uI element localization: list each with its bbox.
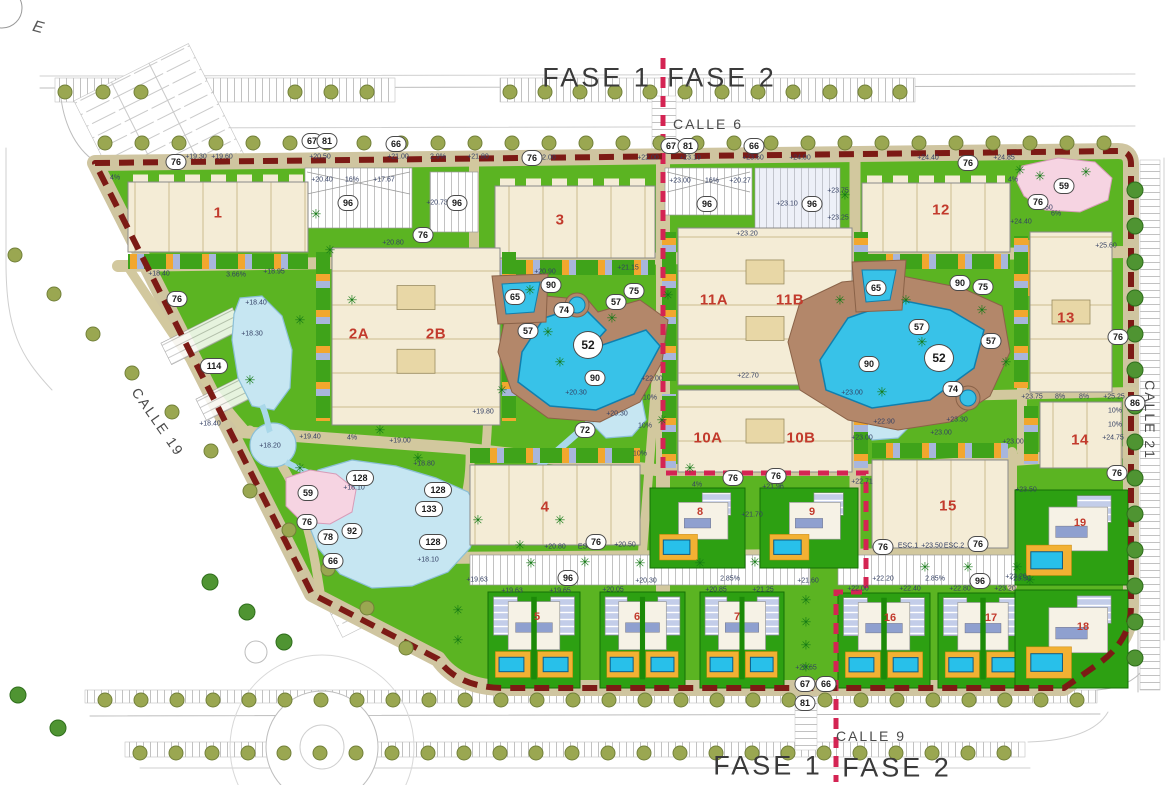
street-tree-icon xyxy=(1023,136,1038,151)
ref-marker-57: 57 xyxy=(981,333,1002,349)
street-tree-icon xyxy=(357,136,372,151)
palm-tree-icon: ✳ xyxy=(607,312,618,325)
elevation-label: 4% xyxy=(347,435,357,442)
street-tree-icon xyxy=(98,136,113,151)
street-tree-icon xyxy=(530,693,545,708)
street-tree-icon xyxy=(1034,693,1049,708)
elevation-label: 10% xyxy=(643,395,657,402)
elevation-label: 2.85% xyxy=(720,576,740,583)
street-tree-icon xyxy=(125,366,140,381)
street-tree-icon xyxy=(8,248,23,263)
palm-tree-icon: ✳ xyxy=(325,244,336,257)
elevation-label: +23.00 xyxy=(851,435,873,442)
elevation-label: +24.75 xyxy=(1102,435,1124,442)
elevation-label: +24.40 xyxy=(917,155,939,162)
street-tree-icon xyxy=(986,136,1001,151)
ref-marker-59: 59 xyxy=(298,485,319,501)
elevation-label: ESC.1 xyxy=(898,543,918,550)
building-number-10A: 10A xyxy=(693,430,722,447)
elevation-label: +18.30 xyxy=(241,331,263,338)
palm-tree-icon: ✳ xyxy=(543,326,554,339)
building-number-2A: 2A xyxy=(349,326,369,343)
elevation-label: +24.40 xyxy=(1010,219,1032,226)
ref-marker-76: 76 xyxy=(586,534,607,550)
street-tree-icon xyxy=(493,746,508,761)
elevation-label: +18.80 xyxy=(413,461,435,468)
building-number-5: 5 xyxy=(534,611,540,623)
street-tree-icon xyxy=(1060,136,1075,151)
street-tree-icon xyxy=(890,693,905,708)
building-number-14: 14 xyxy=(1071,432,1089,449)
building-number-12: 12 xyxy=(932,202,950,219)
building-number-10B: 10B xyxy=(786,430,815,447)
elevation-label: +22.71 xyxy=(851,479,873,486)
elevation-label: +22.90 xyxy=(873,419,895,426)
palm-tree-icon: ✳ xyxy=(877,386,888,399)
round-tree-icon xyxy=(1127,362,1144,379)
street-tree-icon xyxy=(565,746,580,761)
ref-marker-74: 74 xyxy=(943,381,964,397)
elevation-label: +21.70 xyxy=(741,512,763,519)
street-tree-icon xyxy=(601,746,616,761)
elevation-label: +20.30 xyxy=(565,390,587,397)
building-number-6: 6 xyxy=(634,611,640,623)
street-tree-icon xyxy=(529,746,544,761)
building-number-11A: 11A xyxy=(700,292,728,309)
ref-marker-65: 65 xyxy=(866,280,887,296)
street-tree-icon xyxy=(324,85,339,100)
elevation-label: +23.00 xyxy=(669,178,691,185)
palm-tree-icon: ✳ xyxy=(515,539,526,552)
street-tree-icon xyxy=(170,693,185,708)
elevation-label: +17.67 xyxy=(373,177,395,184)
palm-tree-icon: ✳ xyxy=(526,557,537,570)
elevation-label: 4% xyxy=(1008,177,1018,184)
round-tree-icon xyxy=(1127,470,1144,487)
ref-marker-57: 57 xyxy=(909,319,930,335)
building-number-8: 8 xyxy=(697,506,703,518)
elevation-label: +19.30 xyxy=(185,154,207,161)
elevation-label: +19.63 xyxy=(466,577,488,584)
street-tree-icon xyxy=(96,85,111,100)
ref-marker-128: 128 xyxy=(419,534,447,550)
palm-tree-icon: ✳ xyxy=(801,639,812,652)
street-tree-icon xyxy=(468,136,483,151)
ref-marker-90: 90 xyxy=(859,356,880,372)
ref-marker-133: 133 xyxy=(415,501,443,517)
ref-marker-128: 128 xyxy=(424,482,452,498)
ref-marker-76: 76 xyxy=(1028,194,1049,210)
elevation-label: +19.80 xyxy=(472,409,494,416)
street-tree-icon xyxy=(385,746,400,761)
street-tree-icon xyxy=(206,693,221,708)
street-tree-icon xyxy=(350,693,365,708)
round-tree-icon xyxy=(276,634,293,651)
street-tree-icon xyxy=(949,136,964,151)
ref-marker-76: 76 xyxy=(167,291,188,307)
round-tree-icon xyxy=(1127,290,1144,307)
street-tree-icon xyxy=(47,287,62,302)
palm-tree-icon: ✳ xyxy=(555,356,566,369)
round-tree-icon xyxy=(1127,542,1144,559)
elevation-label: +20.90 xyxy=(534,269,556,276)
street-tree-icon xyxy=(727,136,742,151)
street-tree-icon xyxy=(998,693,1013,708)
labels-overlay: E FASE 1 FASE 2 FASE 1 FASE 2 CALLE 6 CA… xyxy=(0,0,1170,785)
street-tree-icon xyxy=(823,85,838,100)
elevation-label: +23.00 xyxy=(841,390,863,397)
street-tree-icon xyxy=(98,693,113,708)
ref-marker-92: 92 xyxy=(342,523,363,539)
elevation-label: +24.85 xyxy=(993,155,1015,162)
street-tree-icon xyxy=(710,693,725,708)
elevation-label: +25.25 xyxy=(1103,394,1125,401)
street-tree-icon xyxy=(961,746,976,761)
ref-marker-72: 72 xyxy=(575,422,596,438)
street-tree-icon xyxy=(566,693,581,708)
elevation-label: +19.40 xyxy=(299,434,321,441)
ref-marker-66: 66 xyxy=(744,138,765,154)
phase-label-fase1-top: FASE 1 xyxy=(542,63,652,94)
ref-marker-74: 74 xyxy=(554,302,575,318)
round-tree-icon xyxy=(1127,218,1144,235)
street-tree-icon xyxy=(360,601,375,616)
phase-label-fase1-bottom: FASE 1 xyxy=(713,751,823,782)
elevation-label: 4% xyxy=(692,482,702,489)
elevation-label: 2.85% xyxy=(925,576,945,583)
ref-marker-76: 76 xyxy=(1108,329,1129,345)
round-tree-icon xyxy=(1127,254,1144,271)
elevation-label: +24.00 xyxy=(789,155,811,162)
palm-tree-icon: ✳ xyxy=(977,304,988,317)
palm-tree-icon: ✳ xyxy=(801,594,812,607)
street-tree-icon xyxy=(854,693,869,708)
street-tree-icon xyxy=(283,136,298,151)
palm-tree-icon: ✳ xyxy=(1081,166,1092,179)
ref-marker-66: 66 xyxy=(323,553,344,569)
elevation-label: +22.40 xyxy=(899,586,921,593)
street-tree-icon xyxy=(135,136,150,151)
elevation-label: 16% xyxy=(345,177,359,184)
elevation-label: 10% xyxy=(638,423,652,430)
palm-tree-icon: ✳ xyxy=(555,514,566,527)
elevation-label: ESC.2 xyxy=(944,543,964,550)
elevation-label: +23.50 xyxy=(1009,576,1031,583)
street-tree-icon xyxy=(209,136,224,151)
street-tree-icon xyxy=(962,693,977,708)
elevation-label: +23.60 xyxy=(742,155,764,162)
elevation-label: +22.20 xyxy=(872,576,894,583)
palm-tree-icon: ✳ xyxy=(663,289,674,302)
phase-label-fase2-bottom: FASE 2 xyxy=(842,753,952,784)
elevation-label: +19.63 xyxy=(501,588,523,595)
elevation-label: 6% xyxy=(1051,211,1061,218)
palm-tree-icon: ✳ xyxy=(801,616,812,629)
palm-tree-icon: ✳ xyxy=(695,557,706,570)
palm-tree-icon: ✳ xyxy=(1035,170,1046,183)
palm-tree-icon: ✳ xyxy=(657,414,668,427)
elevation-label: +20.65 xyxy=(795,665,817,672)
round-tree-icon xyxy=(1127,614,1144,631)
street-tree-icon xyxy=(386,693,401,708)
palm-tree-icon: ✳ xyxy=(1001,356,1012,369)
building-number-11B: 11B xyxy=(776,292,804,309)
ref-marker-81: 81 xyxy=(795,695,816,711)
compass-east-label: E xyxy=(31,18,46,38)
street-tree-icon xyxy=(399,641,414,656)
elevation-label: 16% xyxy=(705,178,719,185)
palm-tree-icon: ✳ xyxy=(473,514,484,527)
elevation-label: +20.80 xyxy=(382,240,404,247)
street-tree-icon xyxy=(422,693,437,708)
elevation-label: +20.50 xyxy=(309,154,331,161)
street-tree-icon xyxy=(673,746,688,761)
round-tree-icon xyxy=(1127,326,1144,343)
elevation-label: +18.40 xyxy=(199,421,221,428)
building-number-19: 19 xyxy=(1074,517,1086,529)
street-tree-icon xyxy=(764,136,779,151)
street-tree-icon xyxy=(858,85,873,100)
street-tree-icon xyxy=(458,693,473,708)
ref-marker-78: 78 xyxy=(318,529,339,545)
elevation-label: 10% xyxy=(1108,408,1122,415)
ref-marker-90: 90 xyxy=(541,277,562,293)
ref-marker-52: 52 xyxy=(924,344,954,372)
palm-tree-icon: ✳ xyxy=(497,384,508,397)
street-tree-icon xyxy=(786,85,801,100)
street-tree-icon xyxy=(893,85,908,100)
ref-marker-57: 57 xyxy=(518,323,539,339)
ref-marker-66: 66 xyxy=(816,676,837,692)
street-tree-icon xyxy=(503,85,518,100)
street-tree-icon xyxy=(838,136,853,151)
street-tree-icon xyxy=(457,746,472,761)
street-tree-icon xyxy=(246,136,261,151)
street-tree-icon xyxy=(542,136,557,151)
street-tree-icon xyxy=(205,746,220,761)
street-tree-icon xyxy=(243,484,258,499)
ref-marker-76: 76 xyxy=(297,514,318,530)
palm-tree-icon: ✳ xyxy=(835,294,846,307)
street-tree-icon xyxy=(165,405,180,420)
ref-marker-76: 76 xyxy=(1107,465,1128,481)
elevation-label: +18.10 xyxy=(417,557,439,564)
street-tree-icon xyxy=(674,693,689,708)
elevation-label: +22.70 xyxy=(737,373,759,380)
round-tree-icon xyxy=(1127,506,1144,523)
elevation-label: 10% xyxy=(633,451,647,458)
street-tree-icon xyxy=(288,85,303,100)
ref-marker-81: 81 xyxy=(317,133,338,149)
ref-marker-76: 76 xyxy=(766,468,787,484)
elevation-label: +19.60 xyxy=(211,154,233,161)
elevation-label: +19.65 xyxy=(549,588,571,595)
palm-tree-icon: ✳ xyxy=(1012,561,1023,574)
building-number-18: 18 xyxy=(1077,621,1089,633)
round-tree-icon xyxy=(1127,650,1144,667)
street-tree-icon xyxy=(801,136,816,151)
palm-tree-icon: ✳ xyxy=(917,336,928,349)
elevation-label: +25.60 xyxy=(1095,243,1117,250)
elevation-label: +18.40 xyxy=(245,300,267,307)
building-number-13: 13 xyxy=(1057,310,1075,327)
elevation-label: +23.75 xyxy=(827,188,849,195)
building-number-7: 7 xyxy=(734,611,740,623)
ref-marker-81: 81 xyxy=(678,138,699,154)
ref-marker-75: 75 xyxy=(973,279,994,295)
ref-marker-57: 57 xyxy=(606,294,627,310)
street-tree-icon xyxy=(431,136,446,151)
ref-marker-59: 59 xyxy=(1054,178,1075,194)
street-tree-icon xyxy=(360,85,375,100)
ref-marker-66: 66 xyxy=(386,136,407,152)
elevation-label: +22.00 xyxy=(847,586,869,593)
elevation-label: +21.96 xyxy=(762,484,784,491)
round-tree-icon xyxy=(202,574,219,591)
street-tree-icon xyxy=(1070,693,1085,708)
ref-marker-114: 114 xyxy=(200,358,228,374)
street-tree-icon xyxy=(875,136,890,151)
palm-tree-icon: ✳ xyxy=(347,294,358,307)
elevation-label: +18.40 xyxy=(148,271,170,278)
elevation-label: +23.25 xyxy=(827,215,849,222)
elevation-label: +21.80 xyxy=(467,154,489,161)
palm-tree-icon: ✳ xyxy=(245,374,256,387)
ref-marker-76: 76 xyxy=(968,536,989,552)
street-tree-icon xyxy=(638,693,653,708)
elevation-label: +21.60 xyxy=(797,578,819,585)
ref-marker-76: 76 xyxy=(166,154,187,170)
palm-tree-icon: ✳ xyxy=(901,294,912,307)
ref-marker-76: 76 xyxy=(873,539,894,555)
round-tree-icon xyxy=(1127,578,1144,595)
elevation-label: +23.10 xyxy=(679,155,701,162)
ref-marker-76: 76 xyxy=(723,470,744,486)
elevation-label: +21.00 xyxy=(387,154,409,161)
palm-tree-icon: ✳ xyxy=(453,604,464,617)
ref-marker-96: 96 xyxy=(338,195,359,211)
elevation-label: +23.00 xyxy=(930,430,952,437)
elevation-label: +23.75 xyxy=(1021,394,1043,401)
street-tree-icon xyxy=(505,136,520,151)
elevation-label: 3.66% xyxy=(226,272,246,279)
palm-tree-icon: ✳ xyxy=(525,284,536,297)
ref-marker-96: 96 xyxy=(697,196,718,212)
ref-marker-76: 76 xyxy=(958,155,979,171)
palm-tree-icon: ✳ xyxy=(295,462,306,475)
street-tree-icon xyxy=(277,746,292,761)
ref-marker-67: 67 xyxy=(795,676,816,692)
elevation-label: +20.85 xyxy=(705,587,727,594)
elevation-label: 10% xyxy=(1108,422,1122,429)
street-tree-icon xyxy=(746,693,761,708)
street-tree-icon xyxy=(282,523,297,538)
elevation-label: +21.15 xyxy=(617,265,639,272)
ref-marker-76: 76 xyxy=(413,227,434,243)
street-tree-icon xyxy=(349,746,364,761)
street-tree-icon xyxy=(134,693,149,708)
palm-tree-icon: ✳ xyxy=(920,561,931,574)
street-tree-icon xyxy=(421,746,436,761)
street-tree-icon xyxy=(172,136,187,151)
palm-tree-icon: ✳ xyxy=(295,314,306,327)
building-number-15: 15 xyxy=(939,498,957,515)
site-plan: E FASE 1 FASE 2 FASE 1 FASE 2 CALLE 6 CA… xyxy=(0,0,1170,785)
building-number-17: 17 xyxy=(985,612,997,624)
ref-marker-90: 90 xyxy=(950,275,971,291)
palm-tree-icon: ✳ xyxy=(311,208,322,221)
elevation-label: 8% xyxy=(1055,394,1065,401)
street-label-calle-9: CALLE 9 xyxy=(836,728,906,744)
street-tree-icon xyxy=(579,136,594,151)
elevation-label: +20.27 xyxy=(729,178,751,185)
elevation-label: +21.25 xyxy=(752,587,774,594)
elevation-label: +23.20 xyxy=(736,231,758,238)
street-tree-icon xyxy=(204,444,219,459)
ref-marker-52: 52 xyxy=(573,331,603,359)
building-number-4: 4 xyxy=(541,499,550,516)
building-number-9: 9 xyxy=(809,506,815,518)
round-tree-icon xyxy=(1127,182,1144,199)
building-number-1: 1 xyxy=(214,205,223,222)
street-tree-icon xyxy=(616,136,631,151)
ref-marker-90: 90 xyxy=(585,370,606,386)
street-label-calle-21: CALLE 21 xyxy=(1142,380,1158,460)
elevation-label: +23.50 xyxy=(921,543,943,550)
elevation-label: +23.30 xyxy=(946,417,968,424)
ref-marker-96: 96 xyxy=(802,196,823,212)
elevation-label: +23.10 xyxy=(776,201,798,208)
palm-tree-icon: ✳ xyxy=(453,634,464,647)
street-tree-icon xyxy=(133,746,148,761)
elevation-label: +20.30 xyxy=(635,578,657,585)
ref-marker-128: 128 xyxy=(346,470,374,486)
elevation-label: +23.20 xyxy=(994,586,1016,593)
palm-tree-icon: ✳ xyxy=(375,424,386,437)
elevation-label: +20.80 xyxy=(544,544,566,551)
street-label-calle-6: CALLE 6 xyxy=(673,116,743,132)
ref-marker-76: 76 xyxy=(522,150,543,166)
street-tree-icon xyxy=(494,693,509,708)
palm-tree-icon: ✳ xyxy=(1015,164,1026,177)
street-tree-icon xyxy=(1097,136,1112,151)
street-tree-icon xyxy=(602,693,617,708)
phase-label-fase2-top: FASE 2 xyxy=(667,63,777,94)
elevation-label: +23.00 xyxy=(1002,439,1024,446)
elevation-label: +18.95 xyxy=(263,269,285,276)
elevation-label: +19.00 xyxy=(389,438,411,445)
ref-marker-96: 96 xyxy=(970,573,991,589)
palm-tree-icon: ✳ xyxy=(580,556,591,569)
elevation-label: +23.50 xyxy=(1015,487,1037,494)
street-tree-icon xyxy=(313,746,328,761)
elevation-label: +20.30 xyxy=(606,411,628,418)
round-tree-icon xyxy=(239,604,256,621)
street-tree-icon xyxy=(58,85,73,100)
street-tree-icon xyxy=(134,85,149,100)
street-tree-icon xyxy=(926,693,941,708)
elevation-label: 8% xyxy=(1079,394,1089,401)
palm-tree-icon: ✳ xyxy=(685,462,696,475)
street-tree-icon xyxy=(637,746,652,761)
elevation-label: +20.40 xyxy=(311,177,333,184)
street-tree-icon xyxy=(818,693,833,708)
elevation-label: +22.00 xyxy=(637,155,659,162)
elevation-label: 2.9% xyxy=(430,154,446,161)
palm-tree-icon: ✳ xyxy=(635,557,646,570)
building-number-16: 16 xyxy=(884,612,896,624)
street-tree-icon xyxy=(242,693,257,708)
